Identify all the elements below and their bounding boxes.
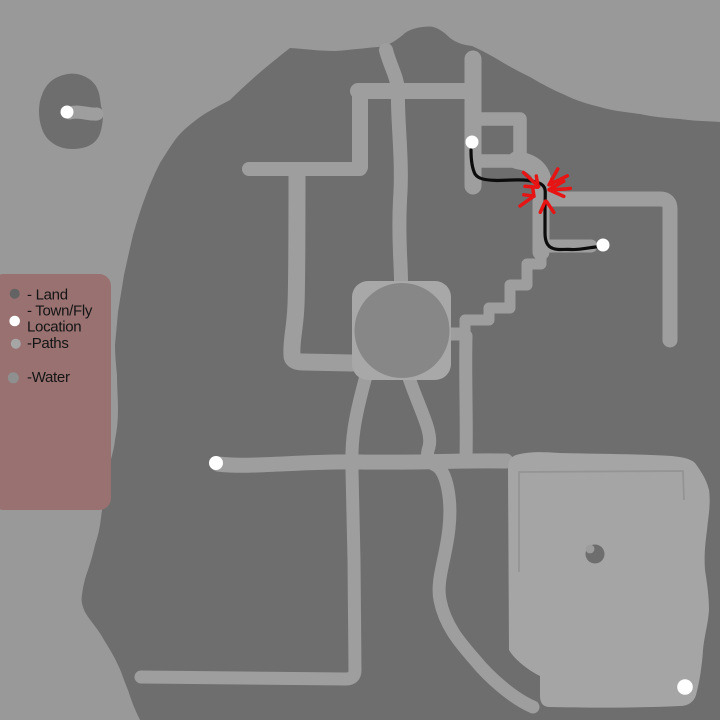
svg-text:- Town/Fly: - Town/Fly — [27, 303, 93, 320]
svg-text:- Land: - Land — [27, 287, 68, 304]
svg-text:-Water: -Water — [27, 369, 70, 386]
svg-text:Location: Location — [27, 319, 81, 336]
svg-text:-Paths: -Paths — [27, 335, 69, 352]
